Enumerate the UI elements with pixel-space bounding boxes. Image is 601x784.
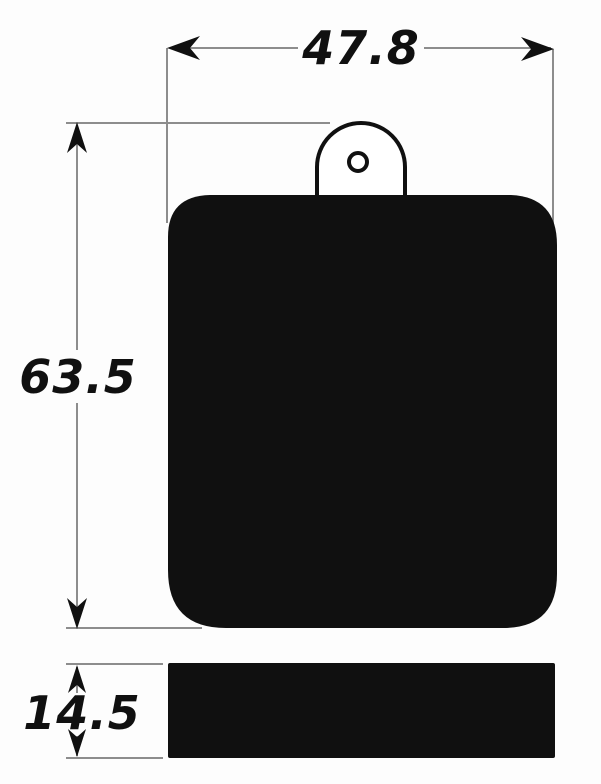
height-dimension-label: 63.5 bbox=[19, 350, 137, 404]
width-dimension-label: 47.8 bbox=[301, 21, 420, 75]
dimension-drawing-svg: 47.8 63.5 14.5 bbox=[0, 0, 601, 784]
tab-hole bbox=[349, 153, 367, 171]
brake-pad-front-view bbox=[168, 195, 557, 628]
brake-pad-side-view bbox=[168, 663, 555, 758]
technical-drawing: 47.8 63.5 14.5 bbox=[0, 0, 601, 784]
thickness-dimension-label: 14.5 bbox=[23, 686, 141, 740]
